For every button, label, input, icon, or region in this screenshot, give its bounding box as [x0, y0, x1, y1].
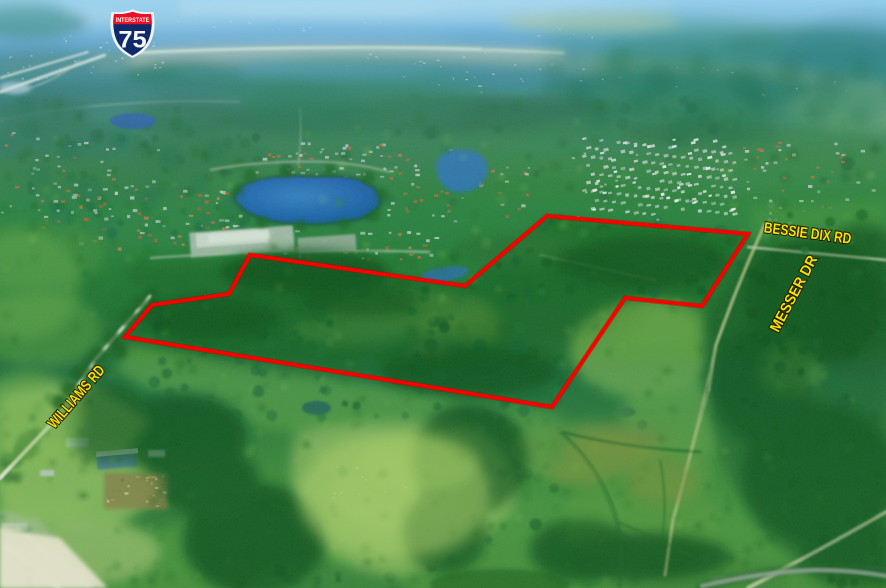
svg-text:INTERSTATE: INTERSTATE	[116, 17, 150, 24]
svg-text:75: 75	[118, 26, 146, 53]
